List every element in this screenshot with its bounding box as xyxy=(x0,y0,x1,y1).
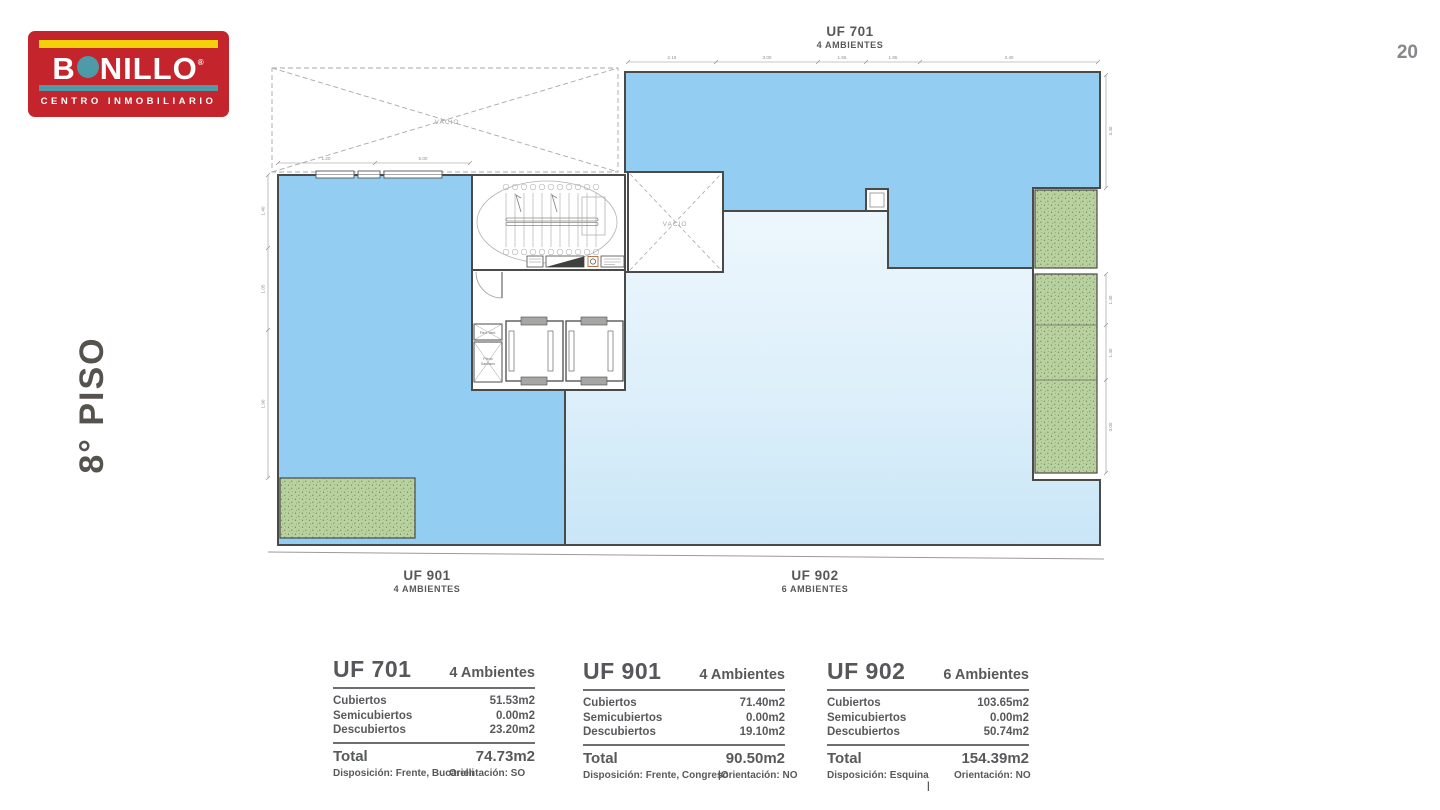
elevator-1 xyxy=(506,317,563,385)
unit-701-id: UF 701 xyxy=(750,24,950,39)
orientacion-text: Orientación: SO xyxy=(449,768,525,779)
area-value: 0.00m2 xyxy=(746,711,785,726)
sanitary-shaft-label-2: Sanitario xyxy=(481,362,495,366)
area-value: 71.40m2 xyxy=(740,696,785,711)
svg-text:1.90: 1.90 xyxy=(261,399,266,408)
divider xyxy=(583,744,785,746)
logo-o-disc xyxy=(77,56,99,78)
logo-wordmark-rest: NILLO xyxy=(100,51,198,86)
svg-text:1.20: 1.20 xyxy=(322,156,331,161)
total-value: 74.73m2 xyxy=(476,748,535,765)
unit-901-ambientes: 4 AMBIENTES xyxy=(327,584,527,594)
svg-text:1.40: 1.40 xyxy=(261,206,266,215)
terrace-901 xyxy=(280,478,415,538)
column xyxy=(866,189,888,211)
footer-separator: | xyxy=(927,781,930,792)
svg-text:1.40: 1.40 xyxy=(1108,348,1113,357)
unit-902-id: UF 902 xyxy=(715,568,915,583)
orientacion-text: |Orientación: NO xyxy=(718,770,797,781)
area-label: Cubiertos xyxy=(827,696,881,711)
total-label: Total xyxy=(333,748,368,765)
unit-label-901: UF 901 4 AMBIENTES xyxy=(327,568,527,594)
table-row: Semicubiertos 0.00m2 xyxy=(583,711,785,726)
void-label-top: VACIO xyxy=(435,119,460,126)
area-table-uf701: UF 701 4 Ambientes Cubiertos 51.53m2 Sem… xyxy=(333,656,535,790)
area-label: Semicubiertos xyxy=(827,711,906,726)
floor-label: 8° PISO xyxy=(72,305,112,505)
area-label: Cubiertos xyxy=(583,696,637,711)
area-table-uf902: UF 902 6 Ambientes Cubiertos 103.65m2 Se… xyxy=(827,658,1029,792)
svg-text:2.15: 2.15 xyxy=(668,55,677,60)
staircase-core xyxy=(472,175,625,270)
elevator-2 xyxy=(566,317,623,385)
hall-door xyxy=(476,272,502,298)
area-value: 51.53m2 xyxy=(490,694,535,709)
unit-label-902: UF 902 6 AMBIENTES xyxy=(715,568,915,594)
area-label: Semicubiertos xyxy=(583,711,662,726)
svg-text:1.40: 1.40 xyxy=(1108,295,1113,304)
floor-plan: VACIO xyxy=(250,20,1150,620)
brochure-page: BNILLO® CENTRO INMOBILIARIO 8° PISO 20 xyxy=(0,0,1440,810)
table-unit-title: UF 701 xyxy=(333,656,411,683)
table-row: Semicubiertos 0.00m2 xyxy=(827,711,1029,726)
table-ambientes: 6 Ambientes xyxy=(943,667,1029,683)
elevator-core: Plen. Vent. Pleno Sanitario xyxy=(474,317,623,385)
area-value: 0.00m2 xyxy=(990,711,1029,726)
total-label: Total xyxy=(583,750,618,767)
table-row: Descubiertos 19.10m2 xyxy=(583,725,785,740)
table-row: Cubiertos 51.53m2 xyxy=(333,694,535,709)
table-row: Descubiertos 50.74m2 xyxy=(827,725,1029,740)
total-label: Total xyxy=(827,750,862,767)
unit-701-ambientes: 4 AMBIENTES xyxy=(750,40,950,50)
table-unit-title: UF 901 xyxy=(583,658,661,685)
svg-text:5.00: 5.00 xyxy=(419,156,428,161)
divider xyxy=(333,742,535,744)
logo: BNILLO® CENTRO INMOBILIARIO xyxy=(28,31,229,117)
svg-text:3.00: 3.00 xyxy=(1108,422,1113,431)
area-table-uf901: UF 901 4 Ambientes Cubiertos 71.40m2 Sem… xyxy=(583,658,785,792)
area-value: 19.10m2 xyxy=(740,725,785,740)
sanitary-shaft-label-1: Pleno xyxy=(483,357,492,361)
void-label-core: VACIO xyxy=(663,221,688,228)
logo-wordmark-b: B xyxy=(52,51,75,86)
table-row: Descubiertos 23.20m2 xyxy=(333,723,535,738)
area-label: Cubiertos xyxy=(333,694,387,709)
area-value: 0.00m2 xyxy=(496,709,535,724)
orientacion-text: Orientación: NO xyxy=(954,770,1031,781)
svg-text:1.85: 1.85 xyxy=(889,55,898,60)
page-number: 20 xyxy=(1397,42,1418,64)
ground-line xyxy=(268,552,1104,559)
divider xyxy=(583,689,785,691)
svg-text:3.40: 3.40 xyxy=(1108,126,1113,135)
disposicion-text: Disposición: Frente, Congreso xyxy=(583,770,729,781)
area-label: Semicubiertos xyxy=(333,709,412,724)
area-label: Descubiertos xyxy=(827,725,900,740)
table-unit-title: UF 902 xyxy=(827,658,905,685)
total-value: 154.39m2 xyxy=(961,750,1029,767)
table-row: Cubiertos 103.65m2 xyxy=(827,696,1029,711)
logo-wordmark: BNILLO® xyxy=(28,46,229,85)
svg-text:1.05: 1.05 xyxy=(261,284,266,293)
vent-shaft-label: Plen. Vent. xyxy=(480,331,496,335)
table-row: Cubiertos 71.40m2 xyxy=(583,696,785,711)
registered-mark: ® xyxy=(198,58,205,67)
table-ambientes: 4 Ambientes xyxy=(699,667,785,683)
area-label: Descubiertos xyxy=(333,723,406,738)
svg-text:1.55: 1.55 xyxy=(838,55,847,60)
table-ambientes: 4 Ambientes xyxy=(449,665,535,681)
area-value: 103.65m2 xyxy=(977,696,1029,711)
unit-901-id: UF 901 xyxy=(327,568,527,583)
total-value: 90.50m2 xyxy=(726,750,785,767)
unit-label-701: UF 701 4 AMBIENTES xyxy=(750,24,950,50)
area-value: 50.74m2 xyxy=(984,725,1029,740)
terrace-701 xyxy=(1035,190,1097,268)
divider xyxy=(827,689,1029,691)
area-value: 23.20m2 xyxy=(490,723,535,738)
terrace-902 xyxy=(1035,274,1097,473)
logo-tagline: CENTRO INMOBILIARIO xyxy=(28,96,229,107)
divider xyxy=(827,744,1029,746)
table-row: Semicubiertos 0.00m2 xyxy=(333,709,535,724)
svg-text:3.00: 3.00 xyxy=(763,55,772,60)
svg-text:3.40: 3.40 xyxy=(1005,55,1014,60)
unit-902-ambientes: 6 AMBIENTES xyxy=(715,584,915,594)
windows xyxy=(316,171,442,178)
area-label: Descubiertos xyxy=(583,725,656,740)
disposicion-text: Disposición: Esquina xyxy=(827,770,929,781)
logo-teal-bar xyxy=(39,85,218,91)
divider xyxy=(333,687,535,689)
